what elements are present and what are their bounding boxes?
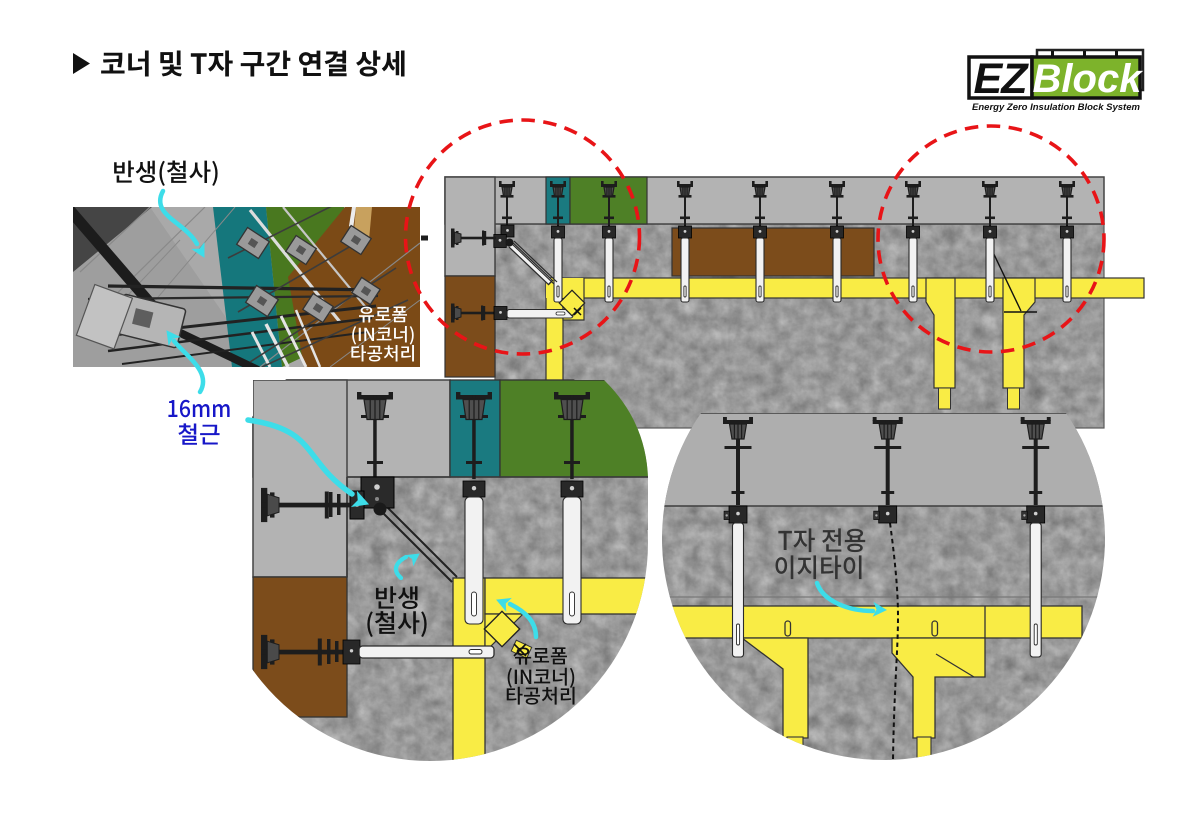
svg-text:Block: Block — [1033, 57, 1144, 101]
svg-text:Energy Zero Insulation Block S: Energy Zero Insulation Block System — [972, 102, 1140, 113]
svg-text:EZ: EZ — [974, 55, 1030, 103]
